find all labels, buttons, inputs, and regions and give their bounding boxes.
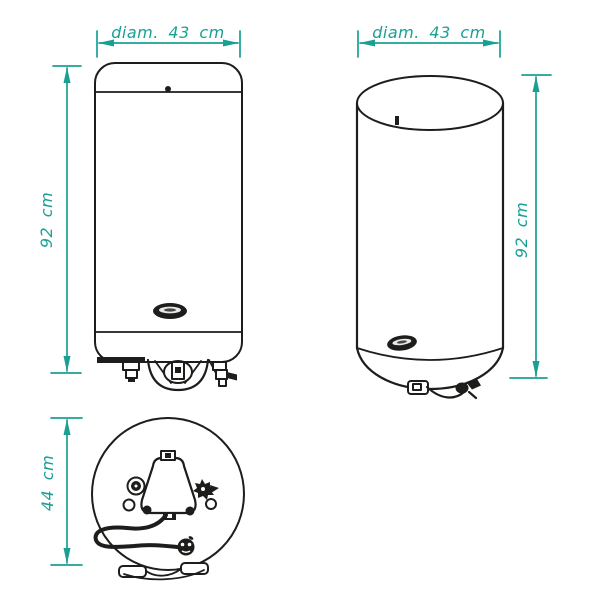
arrow-up-icon [64,67,71,83]
brand-badge-icon [153,303,187,319]
arrow-right-icon [223,40,239,47]
bottom-view [92,418,244,579]
flange-bolt-icon [175,367,181,373]
technical-drawing-page: diam. 43 cm diam. 43 cm 92 cm 92 cm 44 c… [0,0,600,600]
arrow-up-icon [64,419,71,435]
dimension-side-height: 92 cm [510,75,551,378]
side-height-label: 92 cm [512,202,531,258]
dimension-side-width: diam. 43 cm [358,23,500,57]
stand-foot-right [181,563,208,574]
arrow-down-icon [64,548,71,564]
side-view [357,76,503,398]
power-plug-icon [178,539,195,556]
left-port-circle [124,500,135,511]
arrow-down-icon [64,356,71,372]
side-width-label: diam. 43 cm [372,23,486,42]
front-width-label: diam. 43 cm [111,23,225,42]
brand-badge-icon [386,333,418,352]
dimension-front-height: 92 cm [37,66,81,373]
front-height-label: 92 cm [37,192,56,248]
rim-tick-icon [395,116,399,125]
bottom-height-label: 44 cm [38,455,57,511]
side-top-ellipse [357,76,503,130]
front-view [95,63,242,390]
side-bottom-seam [357,348,503,360]
right-port-circle [206,499,216,509]
arrow-up-icon [533,76,540,92]
cover-foot-left-icon [143,506,152,515]
safety-valve [209,360,237,386]
water-heater-drawing: diam. 43 cm diam. 43 cm 92 cm 92 cm 44 c… [0,0,600,600]
front-mount-dot-icon [165,86,171,92]
arrow-down-icon [533,361,540,377]
anode-grommet-icon [128,478,145,495]
inlet-pipe-nut [123,362,139,382]
dimension-front-width: diam. 43 cm [97,23,240,57]
dimension-bottom-height: 44 cm [38,418,82,565]
stand-foot-left [119,566,146,577]
cover-foot-right-icon [186,507,195,516]
